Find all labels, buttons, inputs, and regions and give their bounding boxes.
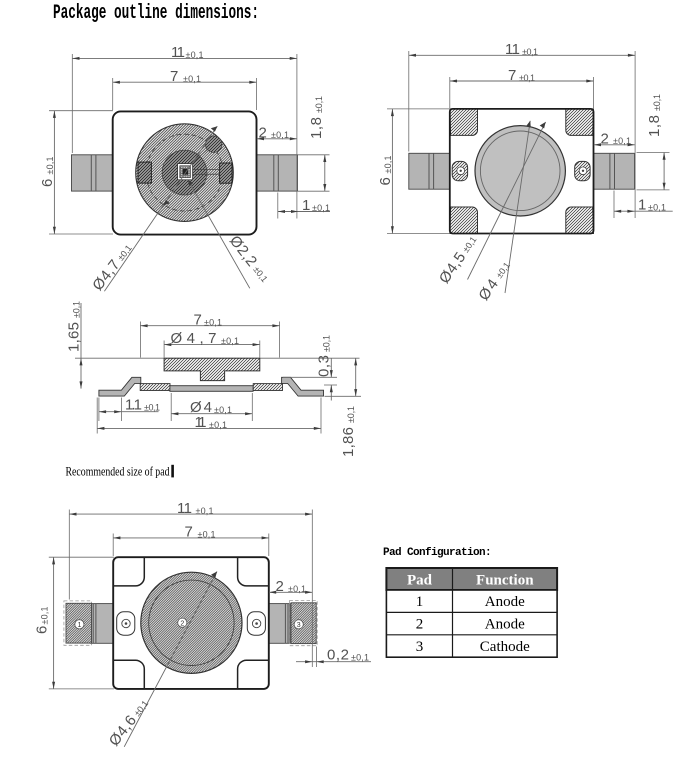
svg-text:1: 1	[302, 197, 310, 214]
svg-text:±0,1: ±0,1	[522, 47, 538, 57]
svg-text:7: 7	[185, 524, 193, 541]
svg-text:3: 3	[416, 639, 424, 655]
svg-text:±0,1: ±0,1	[198, 530, 216, 540]
svg-text:Recommended size of pad: Recommended size of pad	[66, 464, 170, 479]
svg-text:2: 2	[180, 620, 184, 627]
svg-text:1: 1	[638, 197, 646, 214]
svg-text:±0,1: ±0,1	[648, 203, 666, 213]
svg-text:11: 11	[171, 44, 185, 61]
svg-text:±0,1: ±0,1	[144, 403, 160, 413]
svg-text:±0,1: ±0,1	[346, 406, 356, 423]
svg-text:Function: Function	[476, 573, 534, 589]
svg-text:1,8: 1,8	[646, 115, 663, 137]
svg-text:±0,1: ±0,1	[40, 607, 50, 625]
svg-text:±0,1: ±0,1	[288, 584, 306, 594]
svg-text:±0,1: ±0,1	[45, 157, 55, 175]
svg-text:1.1: 1.1	[125, 397, 142, 414]
svg-text:0,2: 0,2	[327, 647, 349, 664]
svg-text:11: 11	[177, 500, 192, 517]
svg-text:±0,1: ±0,1	[72, 301, 82, 318]
svg-text:±0,1: ±0,1	[322, 335, 332, 352]
svg-text:±0,1: ±0,1	[383, 156, 393, 174]
svg-text:1,8: 1,8	[308, 117, 325, 139]
svg-text:±0,1: ±0,1	[519, 73, 535, 83]
svg-text:1,65: 1,65	[66, 322, 83, 352]
svg-text:Package outline dimensions:: Package outline dimensions:	[53, 2, 259, 25]
svg-text:0,3: 0,3	[316, 355, 333, 377]
svg-text:±0,1: ±0,1	[214, 405, 232, 415]
svg-text:±0,1: ±0,1	[314, 96, 324, 113]
svg-text:2: 2	[416, 616, 424, 632]
svg-text:Anode: Anode	[485, 616, 525, 632]
svg-text:1,86: 1,86	[340, 427, 357, 457]
svg-text:6: 6	[377, 177, 394, 185]
svg-text:±0,1: ±0,1	[221, 336, 239, 346]
svg-text:±0,1: ±0,1	[186, 50, 204, 60]
svg-text:±0,1: ±0,1	[209, 420, 227, 430]
svg-text:6: 6	[39, 179, 56, 187]
svg-text:±0,1: ±0,1	[204, 317, 222, 327]
svg-text:7: 7	[170, 68, 178, 85]
svg-text:Cathode: Cathode	[480, 639, 530, 655]
svg-text:11: 11	[505, 41, 520, 58]
svg-text:2: 2	[601, 130, 609, 147]
svg-text:Ø4,7: Ø4,7	[171, 330, 217, 347]
svg-text:±0,1: ±0,1	[652, 94, 662, 111]
svg-text:2: 2	[259, 124, 267, 141]
svg-text:1: 1	[416, 594, 424, 610]
svg-text:7: 7	[194, 311, 202, 328]
svg-text:11: 11	[195, 414, 207, 431]
svg-text:Pad: Pad	[407, 573, 433, 589]
svg-text:±0,1: ±0,1	[613, 136, 631, 146]
svg-text:±0,1: ±0,1	[312, 203, 330, 213]
svg-text:2: 2	[276, 578, 284, 595]
svg-text:Pad Configuration:: Pad Configuration:	[383, 547, 491, 559]
svg-text:3: 3	[297, 622, 301, 629]
svg-text:±0,1: ±0,1	[271, 130, 289, 140]
svg-text:1: 1	[77, 622, 81, 629]
svg-text:±0,1: ±0,1	[183, 74, 201, 84]
svg-text:±0,1: ±0,1	[351, 653, 369, 663]
svg-text:Anode: Anode	[485, 594, 525, 610]
svg-text:7: 7	[508, 67, 516, 84]
svg-text:6: 6	[34, 626, 51, 634]
svg-text:±0,1: ±0,1	[196, 506, 214, 516]
